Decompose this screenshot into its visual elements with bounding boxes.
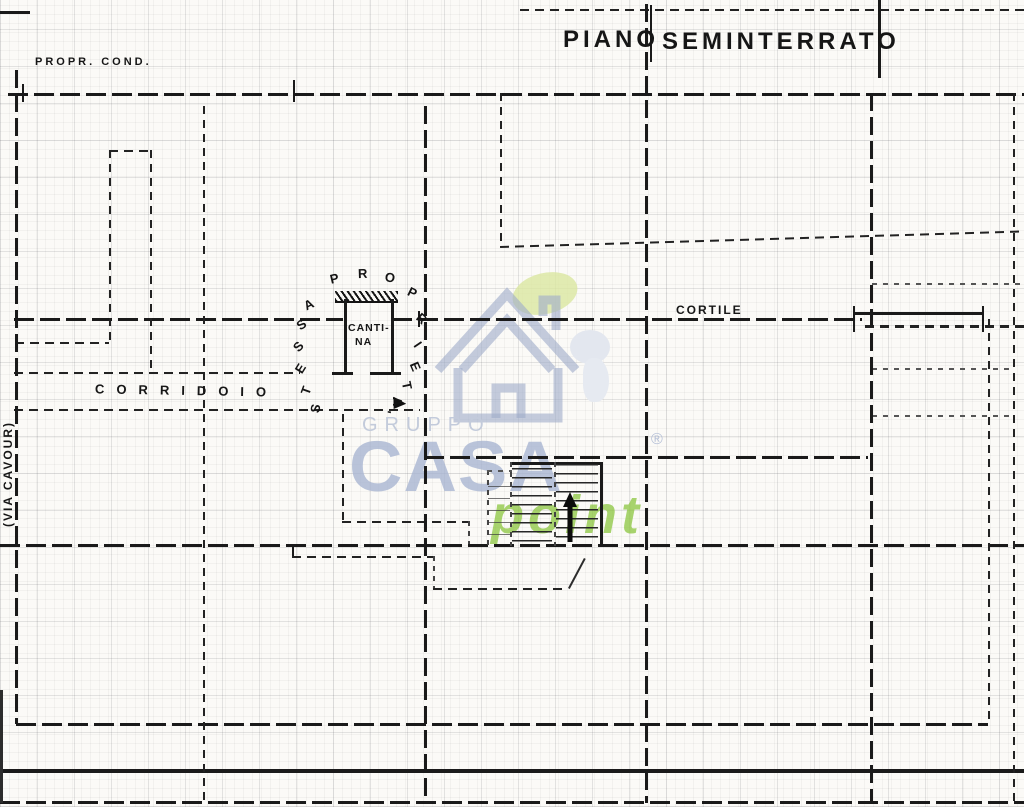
arc-letter: R bbox=[358, 266, 368, 281]
scanned-floor-plan-page: { "document": { "title_left": "PIANO", "… bbox=[0, 0, 1024, 807]
arc-letter: P bbox=[328, 270, 340, 287]
corridor-label: CORRIDOIO bbox=[95, 381, 278, 399]
courtyard-label: CORTILE bbox=[676, 303, 743, 317]
arc-letter: T bbox=[298, 384, 315, 397]
arc-letter: E bbox=[407, 360, 424, 374]
street-label-vertical: (VIA CAVOUR) bbox=[1, 421, 15, 527]
arc-letter: P bbox=[405, 284, 419, 301]
plan-labels: PIANO SEMINTERRATO PROPR. COND. CORRIDOI… bbox=[0, 0, 1024, 807]
arc-letter: E bbox=[292, 361, 309, 376]
arc-letter: S bbox=[290, 338, 307, 355]
arc-letter: I bbox=[411, 339, 425, 350]
arc-letter: O bbox=[384, 269, 397, 286]
arc-letter: A bbox=[390, 397, 405, 406]
page-title-piano: PIANO bbox=[563, 26, 659, 54]
cellar-label-line1: CANTI- bbox=[348, 322, 390, 334]
arc-letter: S bbox=[293, 316, 309, 333]
cellar-label-line2: NA bbox=[355, 336, 372, 348]
arc-letter: T bbox=[399, 380, 415, 391]
property-note-label: PROPR. COND. bbox=[35, 56, 152, 68]
arc-letter: ' bbox=[379, 409, 394, 415]
page-title-seminterrato: SEMINTERRATO bbox=[662, 28, 900, 56]
arc-letter: R bbox=[413, 310, 430, 327]
arc-letter: S bbox=[307, 403, 323, 415]
arc-letter: A bbox=[301, 296, 316, 314]
